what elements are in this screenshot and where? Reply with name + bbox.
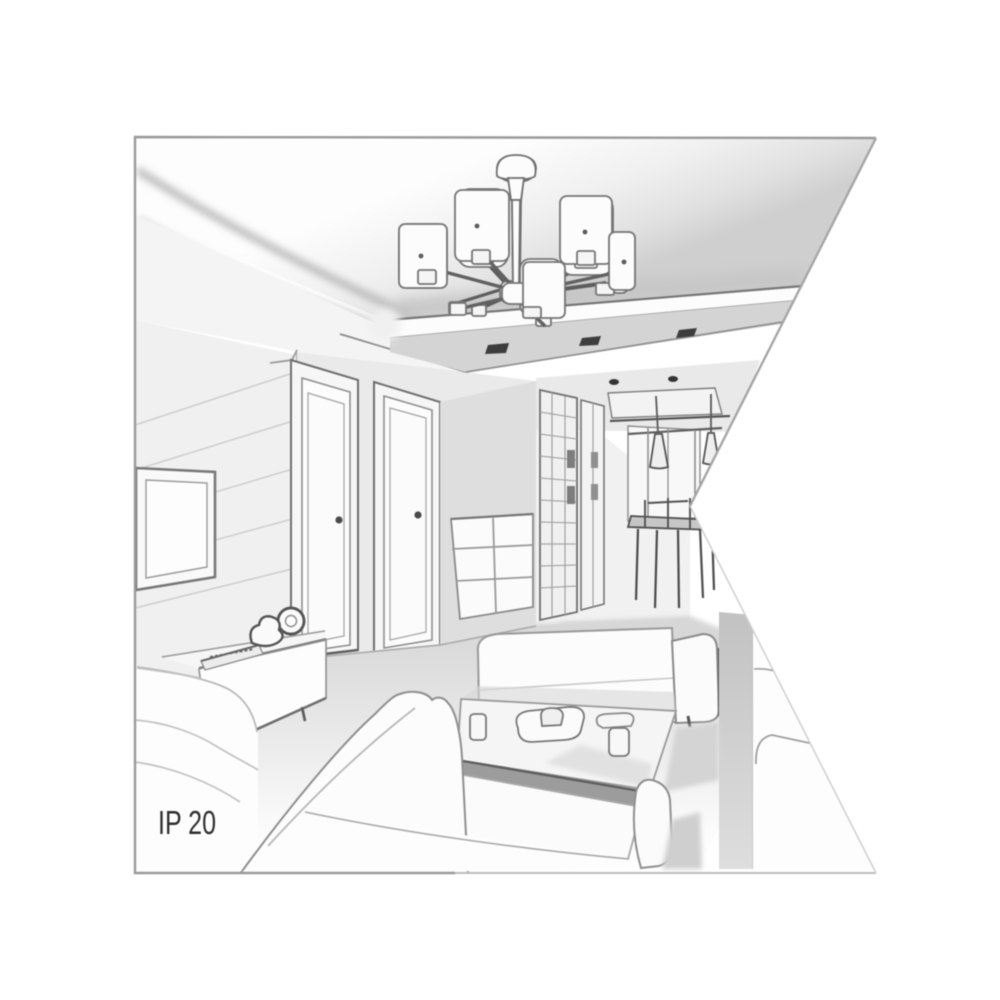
svg-text:IP 20: IP 20: [158, 804, 216, 841]
